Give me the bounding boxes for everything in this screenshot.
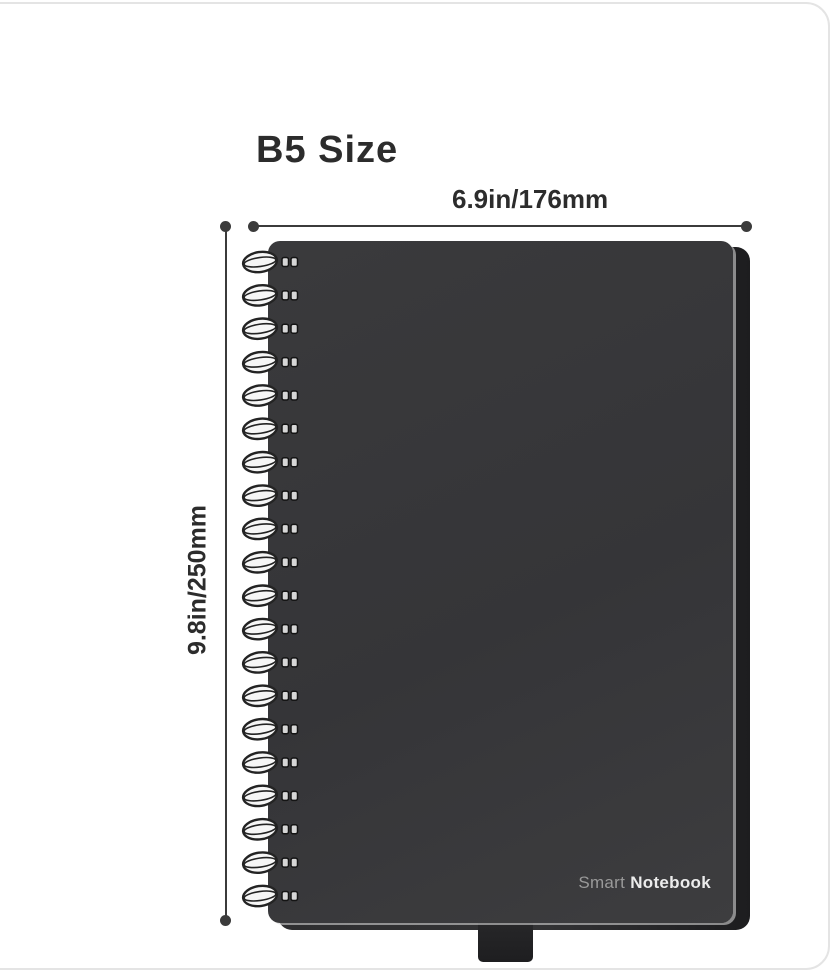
height-dimension-line [225,226,227,920]
height-dimension-endpoint-top [220,221,231,232]
size-title: B5 Size [256,129,398,172]
brand-notebook: Notebook [630,873,711,892]
width-dimension-endpoint-right [741,221,752,232]
width-dimension-line [253,225,747,227]
width-dimension-label: 6.9in/176mm [452,184,608,215]
brand-smart: Smart [578,873,625,892]
notebook-front-cover: Smart Notebook [268,241,733,923]
spiral-binding-icon [238,241,308,926]
height-dimension-label: 9.8in/250mm [184,505,213,655]
product-figure: B5 Size 6.9in/176mm 9.8in/250mm Smart No… [0,0,832,976]
width-dimension-endpoint-left [248,221,259,232]
brand-text: Smart Notebook [578,873,711,893]
height-dimension-endpoint-bottom [220,915,231,926]
